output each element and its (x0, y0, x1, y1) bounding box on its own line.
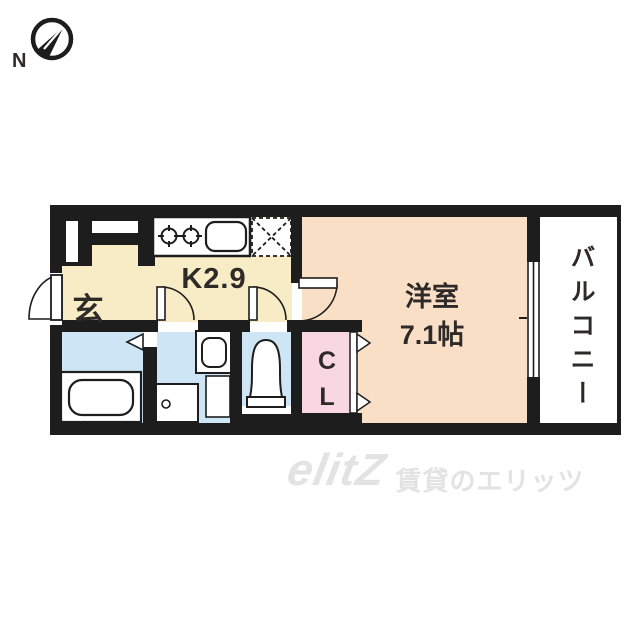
bathtub-icon (61, 372, 141, 422)
closet-label: C L (303, 343, 351, 415)
washroom-counter (206, 376, 230, 417)
living-room-name: 洋室 (368, 278, 496, 316)
wall-center-lower-divider (291, 320, 302, 423)
washing-machine-icon (156, 384, 198, 422)
closet-door-panel (350, 332, 357, 413)
wall-top (50, 205, 621, 217)
floor-plan-page: N 玄 K2.9 洋室 7.1帖 C L バルコニー elitZ 賃貸のエリッツ (0, 0, 640, 640)
washroom-door-leaf (157, 287, 165, 320)
wall-window-bottom (527, 377, 540, 423)
living-door-leaf (299, 278, 337, 288)
living-room-size: 7.1帖 (368, 316, 496, 354)
wall-balcony-right (617, 217, 621, 423)
wall-window-top (527, 217, 540, 262)
genkan-label: 玄 (66, 284, 110, 329)
shoe-cabinet-slot-vertical (66, 221, 78, 262)
wall-bottom (50, 423, 621, 435)
kitchen-label: K2.9 (168, 263, 260, 296)
compass-icon (33, 20, 71, 58)
wall-kitchen-living-divider (291, 217, 302, 283)
wall-left-upper (50, 217, 62, 273)
closet-letter-c: C (303, 343, 351, 379)
wall-bath-washroom-divider (143, 347, 157, 423)
shoe-cabinet-floor-notch (92, 245, 138, 266)
refrigerator-space-icon (252, 218, 291, 256)
shoe-cabinet-icon (62, 217, 155, 266)
balcony-label: バルコニー (547, 233, 599, 425)
north-label: N (12, 50, 26, 73)
shoe-cabinet-slot-horizontal (92, 221, 138, 233)
entrance-door-leaf (51, 275, 62, 320)
watermark: elitZ 賃貸のエリッツ (288, 444, 585, 498)
closet-letter-l: L (303, 379, 351, 415)
watermark-logo: elitZ (283, 444, 390, 496)
wall-hall-segment-3 (287, 320, 362, 332)
sink-icon (206, 222, 246, 251)
washbasin-icon (196, 331, 231, 373)
living-room-label: 洋室 7.1帖 (368, 278, 496, 354)
kitchen-counter (153, 217, 250, 256)
wall-toilet-bottom (242, 414, 292, 423)
entrance-door-icon (29, 275, 62, 320)
watermark-text: 賃貸のエリッツ (396, 461, 585, 498)
